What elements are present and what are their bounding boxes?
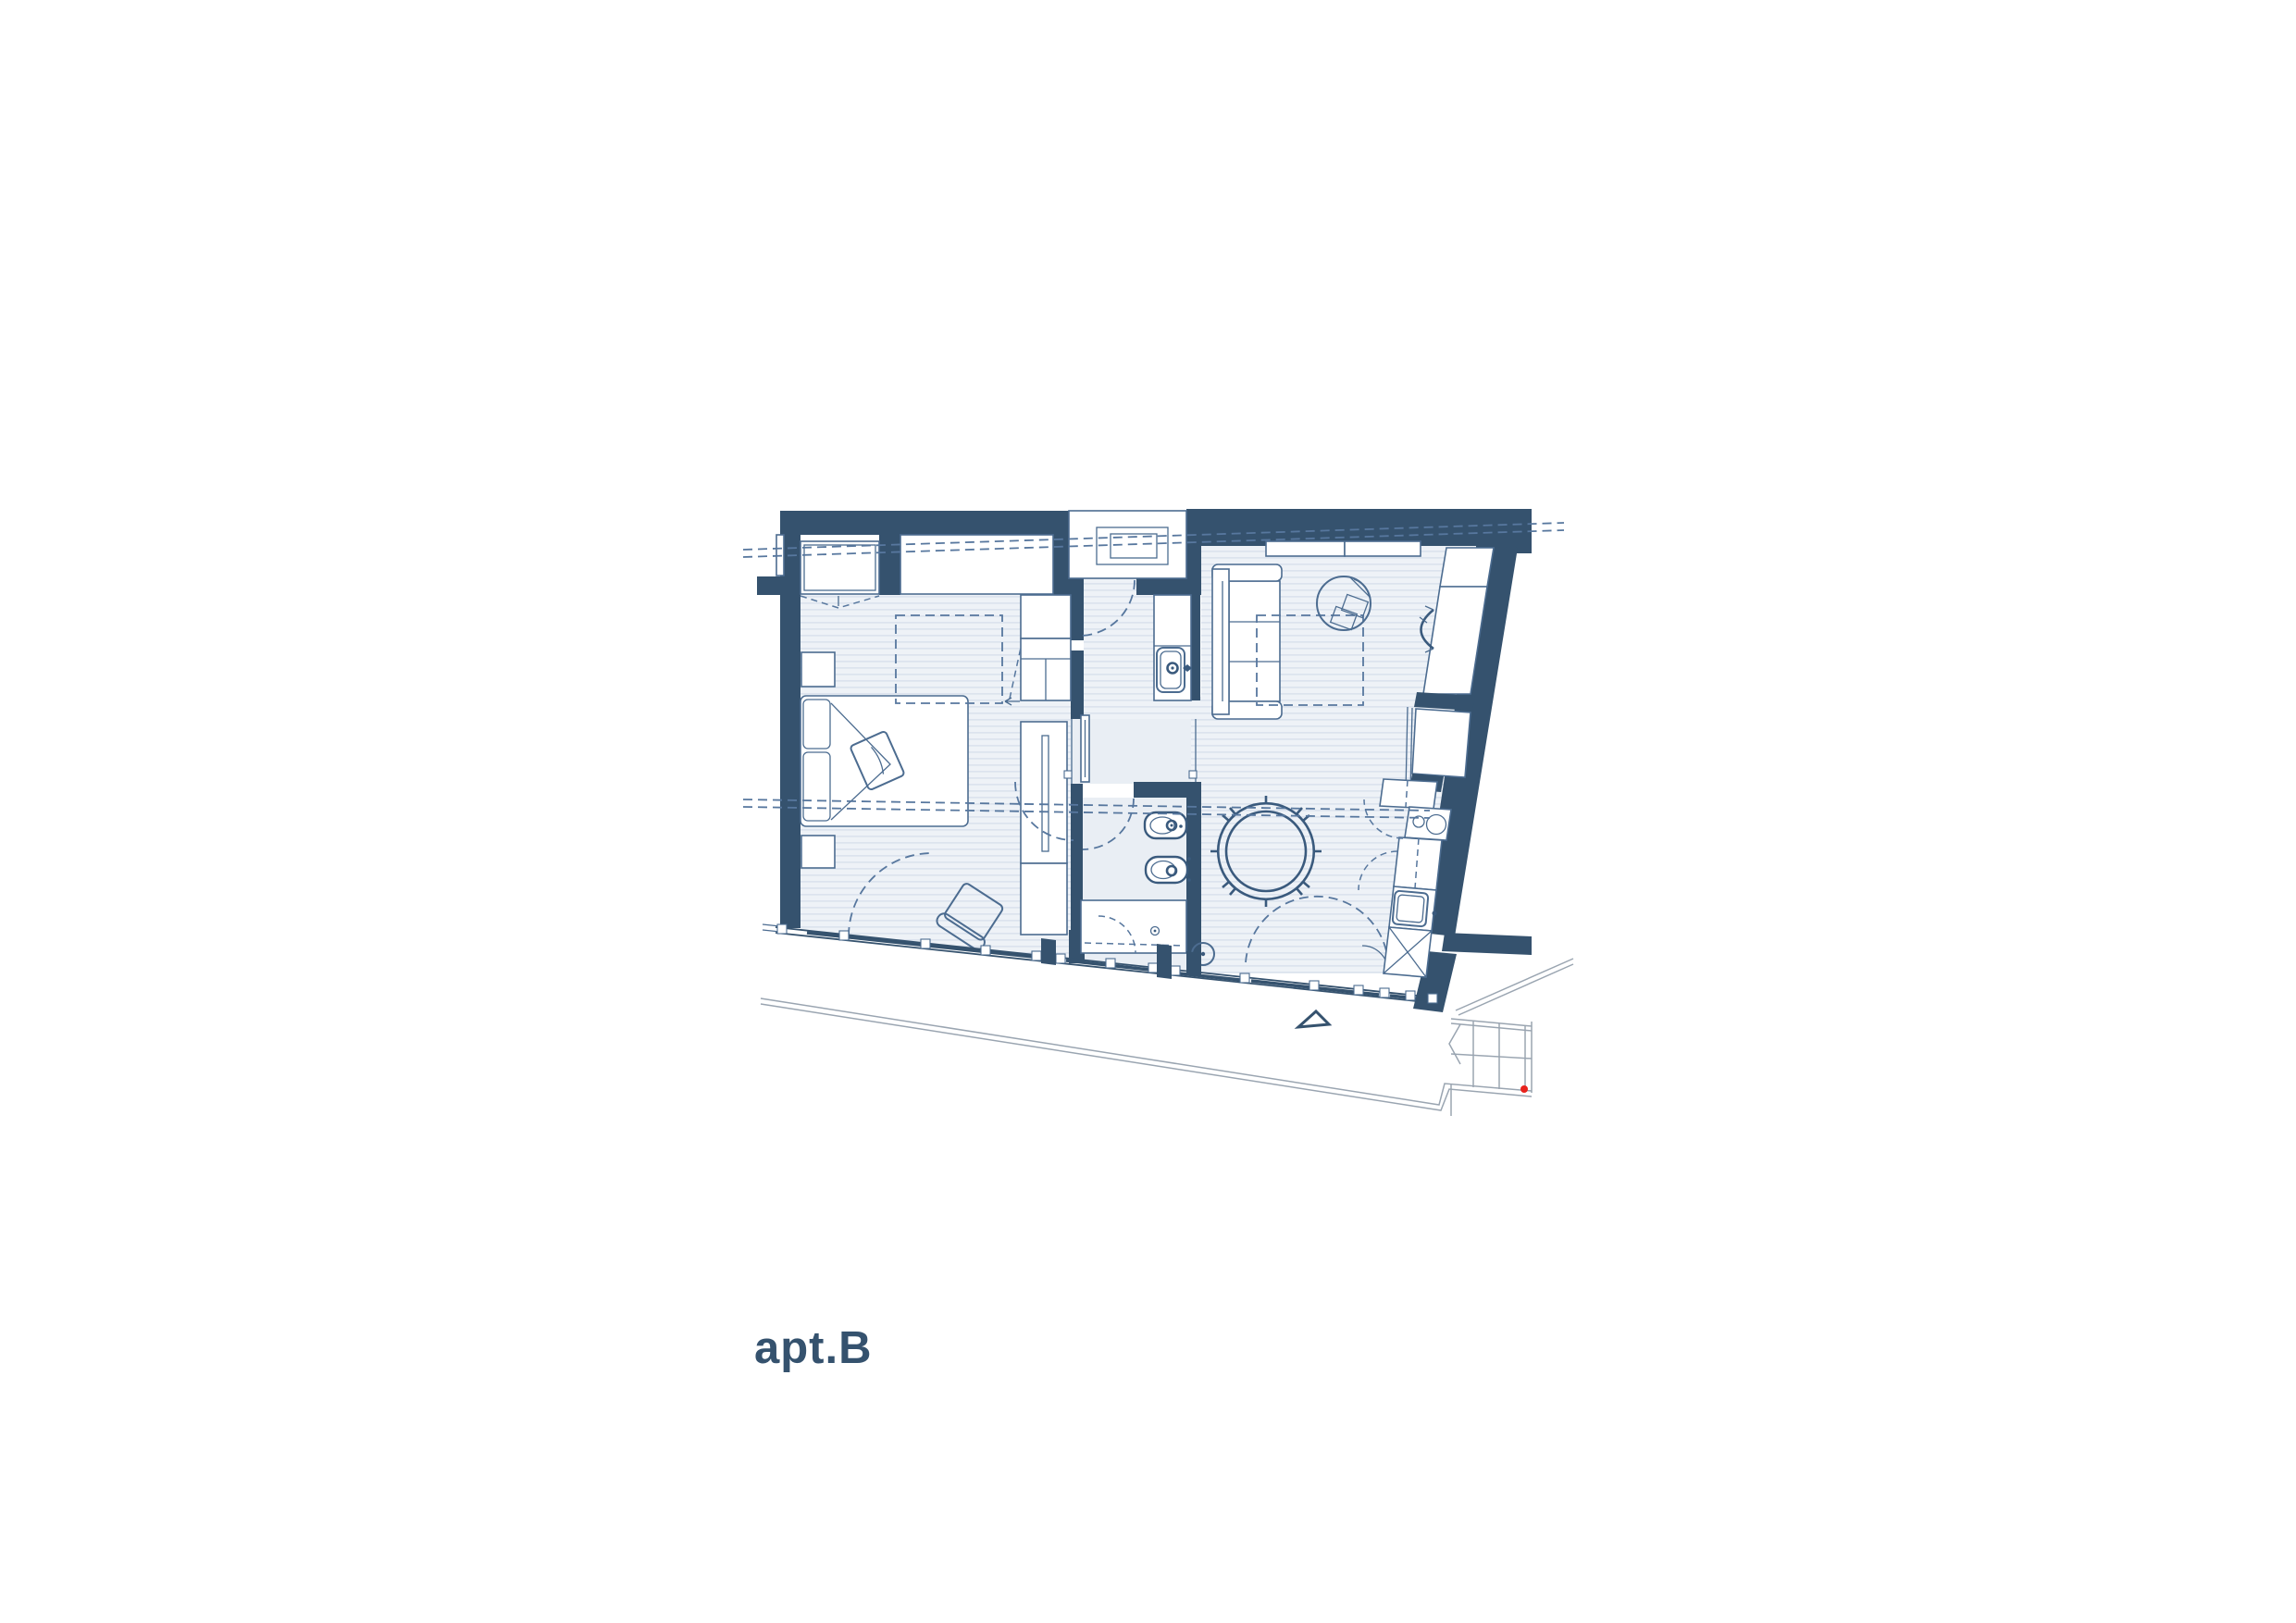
sink-faucet	[1433, 911, 1437, 916]
partition-slot	[1071, 640, 1084, 650]
right-wall-closet-upper	[1440, 548, 1494, 587]
apartment-b-floor-plan	[0, 0, 2296, 1623]
survey-red-dot	[1520, 1085, 1528, 1093]
nightstand	[801, 652, 835, 687]
terrace-edge	[761, 959, 1573, 1116]
entry-niche	[1069, 511, 1186, 578]
window-icon	[800, 541, 879, 594]
door-guide	[1189, 771, 1197, 778]
closet-shelves	[1021, 595, 1071, 638]
wardrobe	[1021, 722, 1067, 863]
sofa	[1212, 564, 1282, 719]
bed	[800, 696, 968, 826]
apartment-label: apt.B	[754, 1322, 873, 1374]
door-pillar	[1041, 938, 1056, 965]
shaft-niche	[1412, 709, 1471, 777]
door-pillar	[1186, 951, 1201, 977]
built-in-shelf	[1345, 541, 1421, 556]
hob-counter	[1405, 807, 1451, 840]
nightstand	[801, 836, 835, 868]
shower-tray	[1081, 900, 1186, 953]
stairs	[1449, 1019, 1532, 1093]
wardrobe-lower	[1021, 863, 1067, 935]
door-pillar	[1157, 944, 1172, 979]
built-in-shelf	[1266, 541, 1345, 556]
kitchen-counter	[1394, 837, 1442, 890]
kitchen-cabinet	[1380, 779, 1437, 809]
page: apt.B	[0, 0, 2296, 1623]
direction-triangle-icon	[1298, 1011, 1329, 1027]
door-guide	[1064, 771, 1072, 778]
stairs-arrow-icon	[1449, 1024, 1460, 1064]
